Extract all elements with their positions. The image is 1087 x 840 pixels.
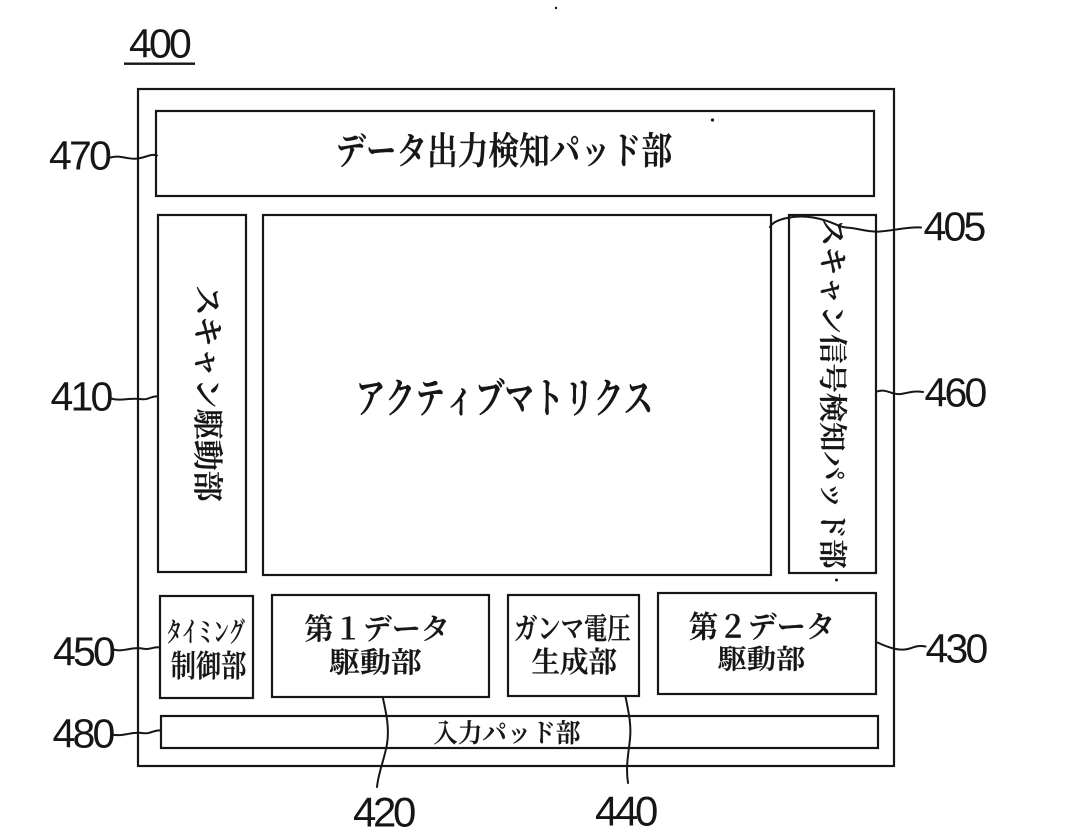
- svg-text:450: 450: [53, 629, 115, 675]
- svg-text:410: 410: [50, 374, 112, 420]
- svg-text:420: 420: [353, 789, 415, 836]
- svg-text:405: 405: [923, 204, 985, 250]
- svg-text:440: 440: [595, 788, 657, 835]
- svg-text:430: 430: [925, 626, 987, 672]
- svg-text:460: 460: [924, 370, 986, 416]
- svg-text:480: 480: [52, 711, 114, 757]
- svg-text:470: 470: [49, 133, 111, 179]
- svg-text:400: 400: [129, 21, 191, 67]
